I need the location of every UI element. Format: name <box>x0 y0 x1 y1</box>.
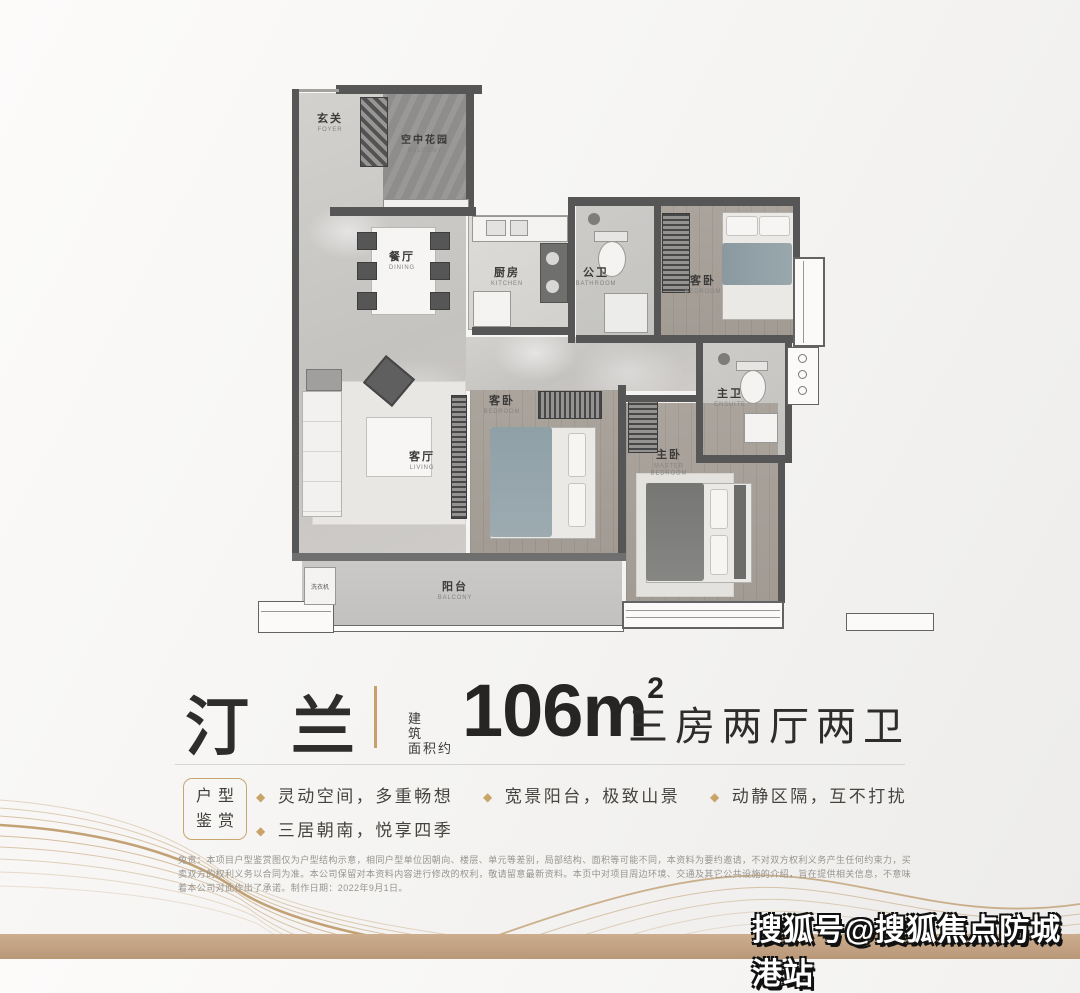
burner <box>546 252 559 265</box>
shaft <box>787 347 819 405</box>
pillow <box>759 216 790 236</box>
wall <box>330 207 476 216</box>
area-prefix-line1: 建筑 <box>408 711 460 741</box>
dining-chair <box>357 232 377 250</box>
feature-item: ◆灵动空间，多重畅想 <box>256 782 453 807</box>
wall <box>466 85 474 214</box>
wall <box>654 206 661 343</box>
wall <box>576 335 794 343</box>
diamond-icon: ◆ <box>710 790 722 804</box>
shower-head <box>718 353 730 365</box>
room-label-balcony: 阳台 BALCONY <box>418 581 492 602</box>
room-label-living: 客厅 LIVING <box>390 451 454 472</box>
badge-line2: 鉴赏 <box>194 809 242 834</box>
poster: { "title": { "name": "汀兰", "area_label_l… <box>0 0 1080 959</box>
floor-plan: 洗衣机 玄关 FOYER 空中花园 BALCONY 餐厅 DINING <box>250 85 940 651</box>
duvet <box>646 483 704 581</box>
sofa <box>302 391 342 517</box>
washing-machine: 洗衣机 <box>304 567 336 605</box>
washer-label: 洗衣机 <box>311 582 329 591</box>
wall <box>292 89 299 555</box>
pillow <box>726 216 758 236</box>
faucet <box>588 213 600 225</box>
room-label-kitchen: 厨房 KITCHEN <box>476 267 538 288</box>
gold-divider <box>374 686 377 748</box>
diamond-icon: ◆ <box>256 824 268 838</box>
wall <box>626 395 698 402</box>
wall <box>336 85 482 94</box>
room-label-foyer: 玄关 FOYER <box>300 113 360 134</box>
bay-window <box>793 257 825 347</box>
kitchen-sink <box>486 220 506 236</box>
feature-item: ◆宽景阳台，极致山景 <box>483 782 680 807</box>
ac-platform <box>846 613 934 631</box>
diamond-icon: ◆ <box>483 790 495 804</box>
wall <box>618 385 626 555</box>
pillow <box>568 433 586 477</box>
duvet <box>722 243 792 285</box>
dining-chair <box>430 232 450 250</box>
sideboard <box>306 369 342 391</box>
diamond-icon: ◆ <box>256 790 268 804</box>
wardrobe <box>628 397 658 453</box>
headboard <box>734 485 746 579</box>
shoe-cabinet <box>360 97 388 167</box>
dining-chair <box>357 292 377 310</box>
pillow <box>710 535 728 575</box>
master-bay-window <box>622 601 784 629</box>
balcony-rail <box>298 625 624 632</box>
unit-name: 汀兰 <box>185 676 397 768</box>
wall-window <box>299 89 339 92</box>
kitchen-sink <box>510 220 528 236</box>
room-label-master: 主卧 MASTER BEDROOM <box>640 449 698 478</box>
feature-item: ◆三居朝南，悦享四季 <box>256 816 453 841</box>
area-prefix: 建筑 面积约 <box>408 711 460 756</box>
section-divider <box>175 764 905 765</box>
ac-platform <box>258 601 334 633</box>
shower-tray <box>604 293 648 333</box>
corridor-floor <box>466 337 698 391</box>
wall <box>472 327 575 335</box>
burner <box>546 280 559 293</box>
room-label-ensuite: 主卫 ENSUITE <box>702 388 758 409</box>
feature-badge: 户型 鉴赏 <box>183 778 247 840</box>
room-label-dining: 餐厅 DINING <box>370 251 434 272</box>
room-label-bedroom-mid: 客卧 BEDROOM <box>474 395 530 416</box>
area-prefix-line2: 面积约 <box>408 741 460 756</box>
room-label-garden: 空中花园 BALCONY <box>385 135 465 155</box>
unit-spec: 三房两厅两卫 <box>628 694 910 752</box>
pillow <box>568 483 586 527</box>
wall <box>778 459 785 603</box>
disclaimer-text: 免责：本项目户型鉴赏图仅为户型结构示意，相同户型单位因朝向、楼层、单元等差别，局… <box>178 853 915 895</box>
badge-line1: 户型 <box>194 784 242 809</box>
room-label-bedroom-top: 客卧 BEDROOM <box>674 275 732 296</box>
bath-sink <box>744 413 778 443</box>
pillow <box>710 489 728 529</box>
wall <box>793 197 800 257</box>
kitchen-cabinet <box>473 291 511 327</box>
wall <box>292 553 626 561</box>
room-label-guest-bath: 公卫 BATHROOM <box>568 267 624 288</box>
watermark: 搜狐号@搜狐焦点防城港站 <box>752 905 1080 993</box>
feature-item: ◆动静区隔，互不打扰 <box>710 782 907 807</box>
duvet <box>490 427 552 537</box>
wardrobe <box>538 391 602 419</box>
wall <box>568 197 800 206</box>
dining-chair <box>430 292 450 310</box>
